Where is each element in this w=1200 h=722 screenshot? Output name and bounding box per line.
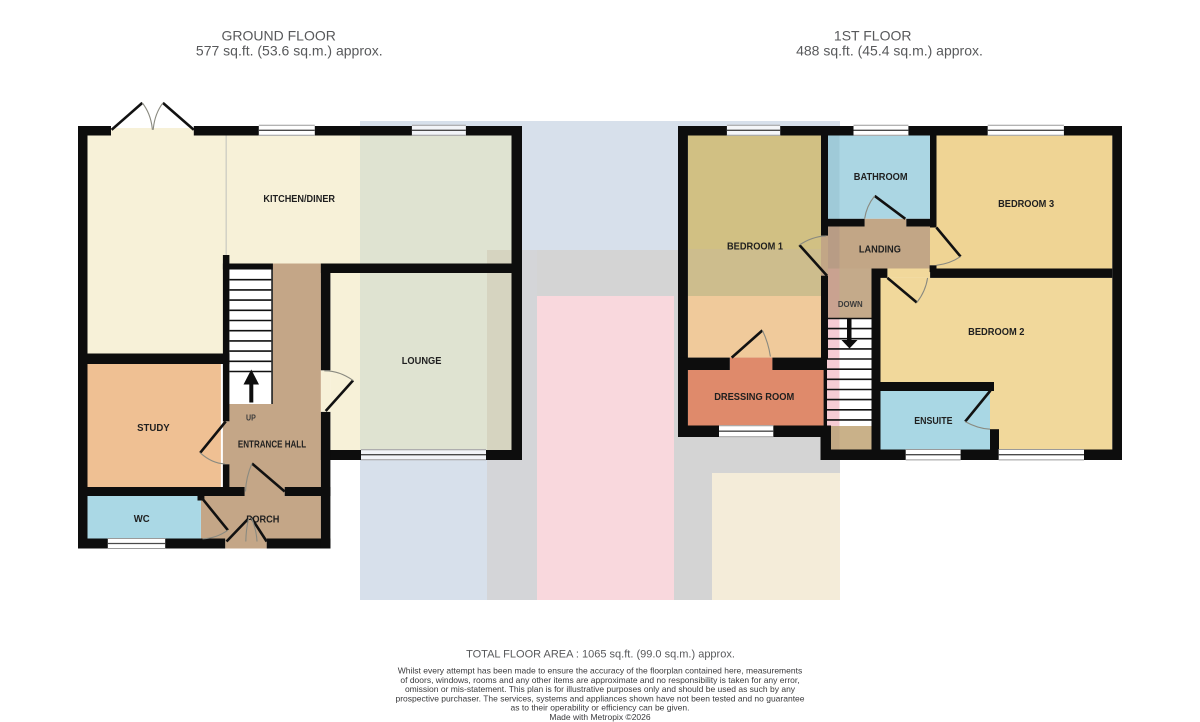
svg-text:TOTAL FLOOR AREA : 1065 sq.ft.: TOTAL FLOOR AREA : 1065 sq.ft. (99.0 sq.… xyxy=(466,649,735,661)
svg-text:LOUNGE: LOUNGE xyxy=(402,356,442,367)
svg-text:Made with Metropix ©2026: Made with Metropix ©2026 xyxy=(549,712,651,722)
svg-text:KITCHEN/DINER: KITCHEN/DINER xyxy=(263,194,335,205)
svg-text:DRESSING ROOM: DRESSING ROOM xyxy=(714,392,794,403)
svg-text:DOWN: DOWN xyxy=(838,300,863,309)
svg-text:ENTRANCE HALL: ENTRANCE HALL xyxy=(238,439,306,450)
svg-text:BEDROOM 1: BEDROOM 1 xyxy=(727,242,783,253)
svg-text:488 sq.ft. (45.4 sq.m.) approx: 488 sq.ft. (45.4 sq.m.) approx. xyxy=(796,43,983,59)
svg-text:ENSUITE: ENSUITE xyxy=(914,416,952,427)
svg-text:577 sq.ft. (53.6 sq.m.) approx: 577 sq.ft. (53.6 sq.m.) approx. xyxy=(196,43,383,59)
svg-text:LANDING: LANDING xyxy=(859,245,901,256)
svg-text:PORCH: PORCH xyxy=(246,514,279,525)
svg-text:BEDROOM 3: BEDROOM 3 xyxy=(998,199,1054,210)
svg-text:BATHROOM: BATHROOM xyxy=(854,172,908,183)
svg-text:WC: WC xyxy=(134,514,150,525)
svg-text:STUDY: STUDY xyxy=(137,423,170,434)
svg-text:BEDROOM 2: BEDROOM 2 xyxy=(968,327,1025,338)
svg-text:UP: UP xyxy=(246,414,256,423)
svg-text:GROUND FLOOR: GROUND FLOOR xyxy=(222,28,336,44)
svg-text:1ST FLOOR: 1ST FLOOR xyxy=(834,28,912,44)
